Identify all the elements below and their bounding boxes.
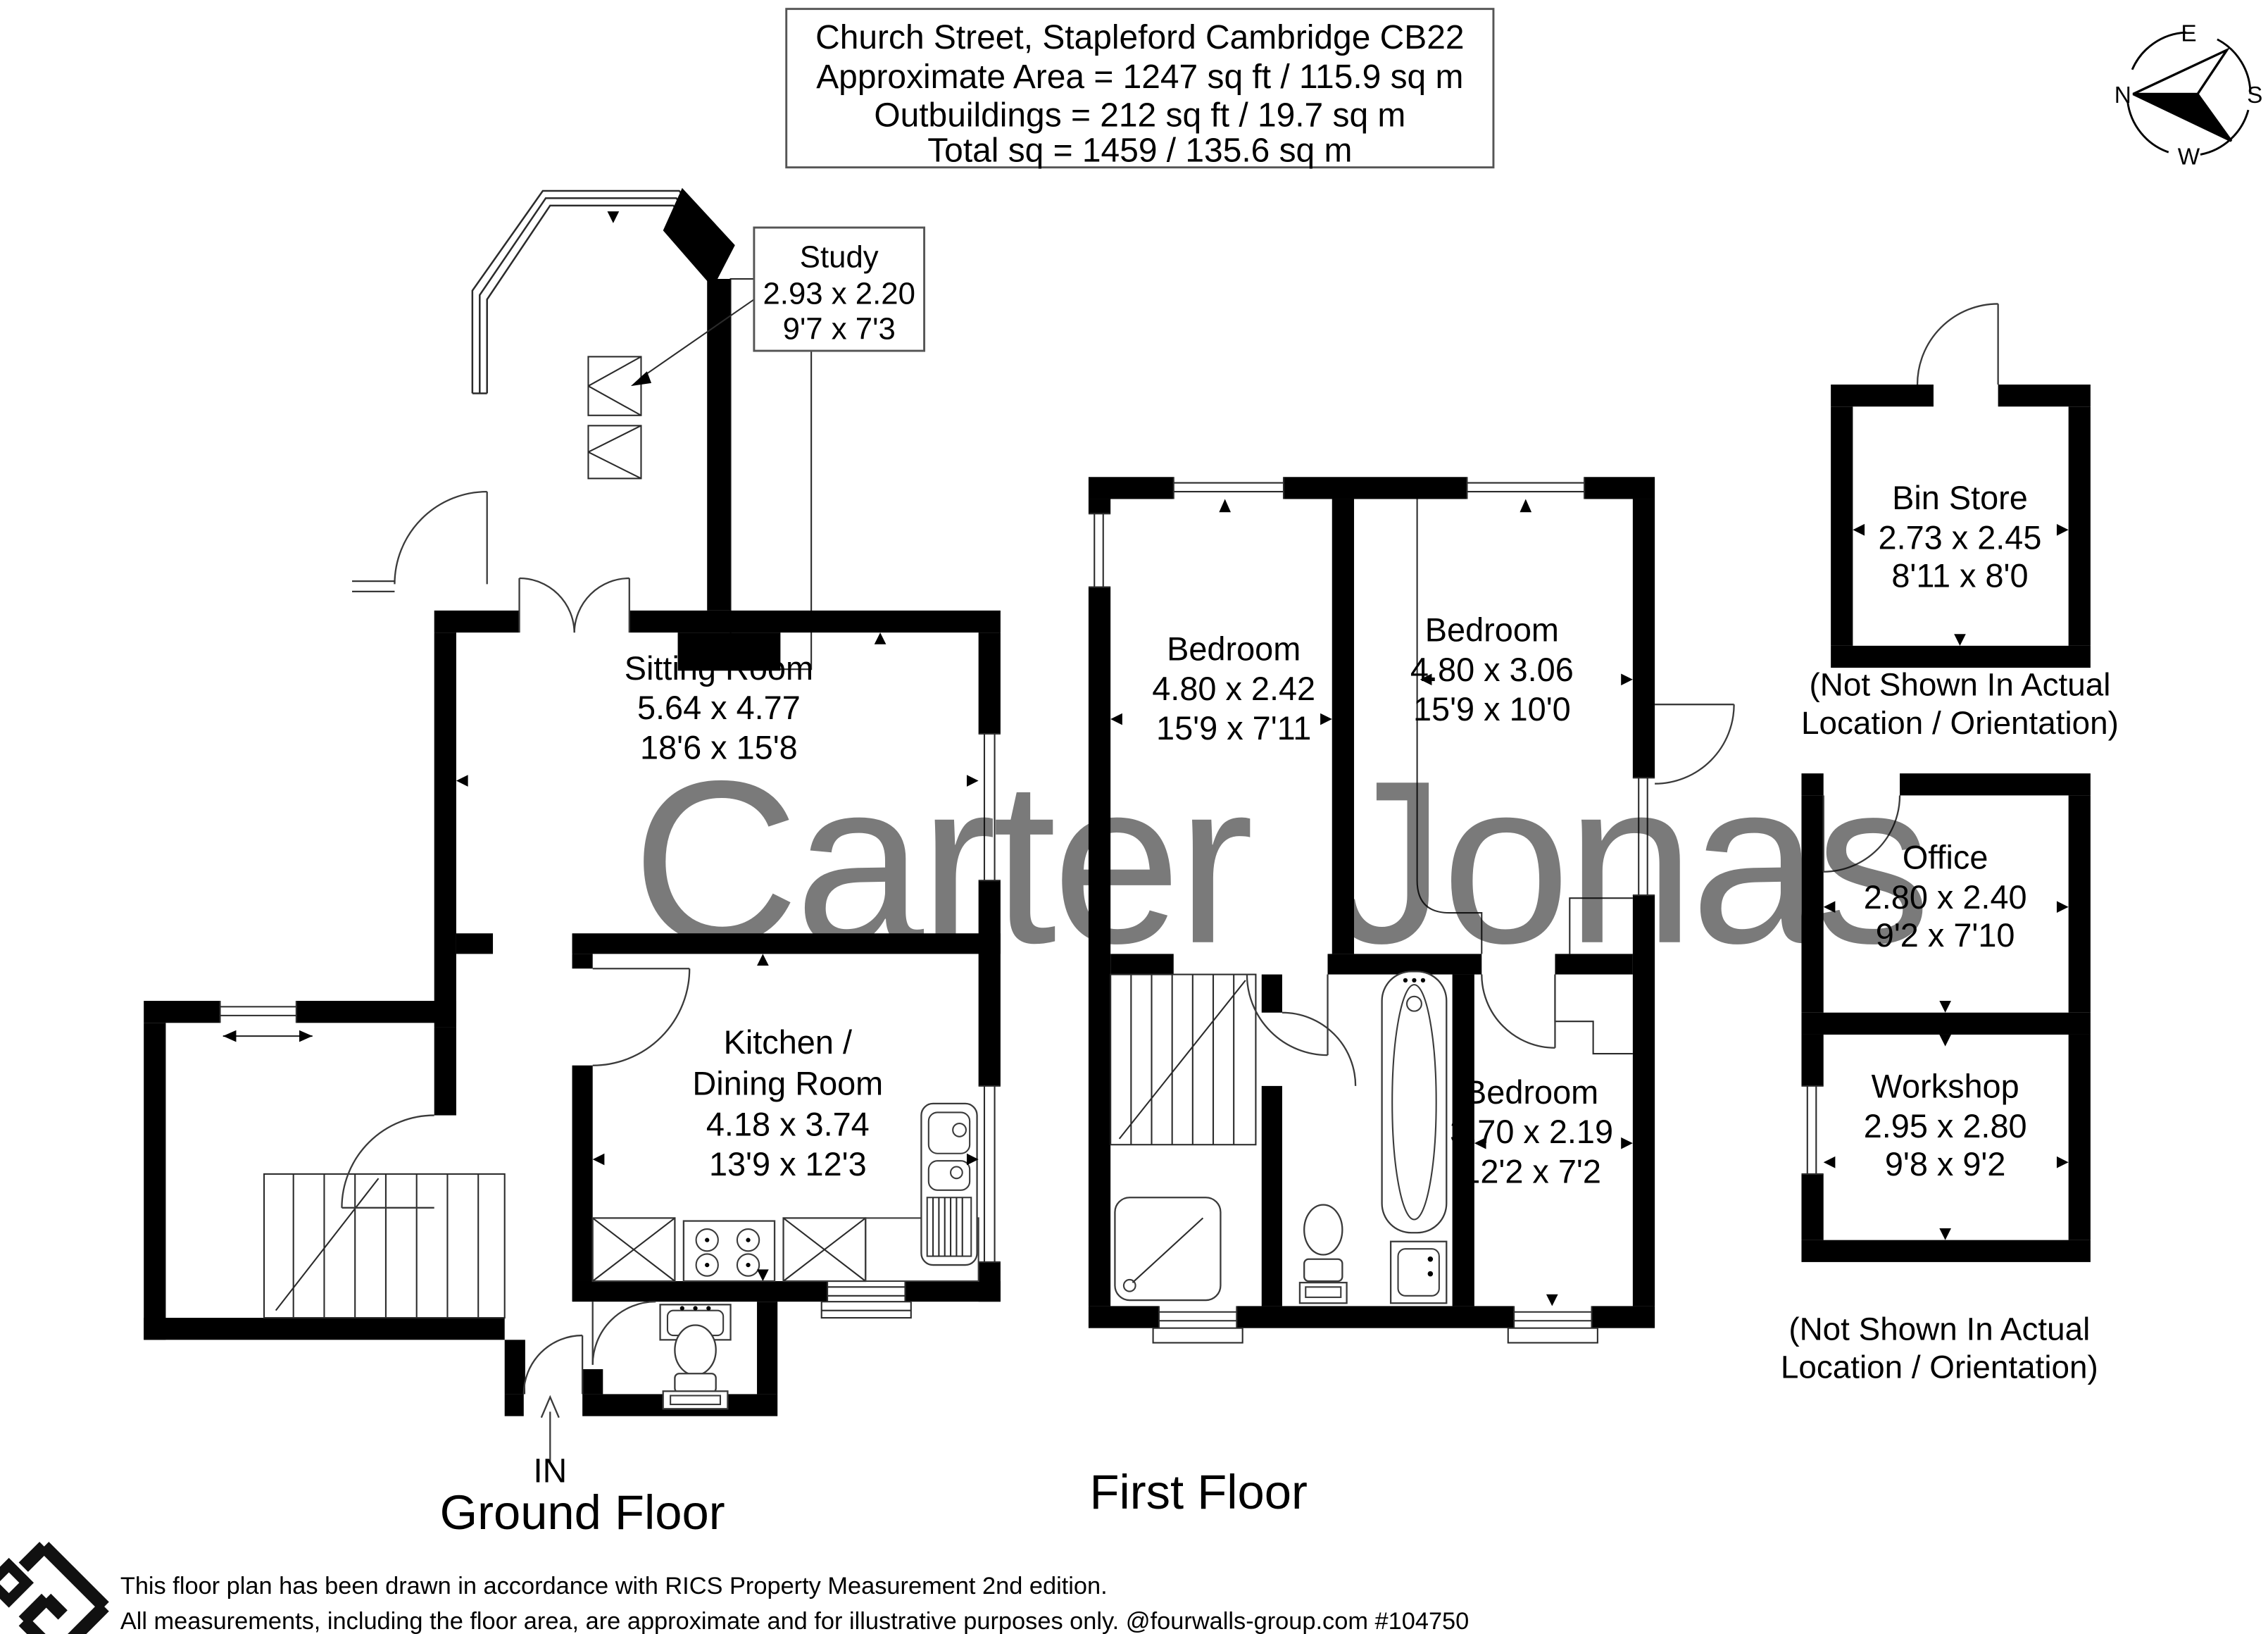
window (1153, 1306, 1243, 1342)
kitchen-name-2: Dining Room (692, 1065, 883, 1102)
bedroom2-metric: 4.80 x 3.06 (1410, 651, 1574, 688)
first-floor-plan: Bedroom 4.80 x 2.42 15'9 x 7'11 Bedroom … (1089, 477, 1734, 1519)
bathroom-sink-icon (1391, 1242, 1446, 1304)
window (1174, 477, 1284, 499)
sliding-arrow-icon (223, 1030, 313, 1042)
bin-store-door-arc (1917, 304, 1998, 385)
window (220, 1001, 296, 1023)
compass-needle-bottom (2133, 94, 2231, 141)
window (1801, 1086, 1823, 1174)
bin-store-metric: 2.73 x 2.45 (1879, 519, 2042, 556)
footer-rics-line: This floor plan has been drawn in accord… (120, 1573, 1108, 1599)
outbuilding-note-2: Location / Orientation) (1781, 1349, 2098, 1385)
bedroom1-metric: 4.80 x 2.42 (1152, 671, 1315, 707)
header-area: Approximate Area = 1247 sq ft / 115.9 sq… (816, 58, 1463, 96)
kitchen-sink-icon (921, 1104, 977, 1265)
watermark-logo: Carter Jonas (632, 732, 1926, 992)
bedroom3-name: Bedroom (1465, 1074, 1598, 1111)
header-box: Church Street, Stapleford Cambridge CB22… (787, 9, 1493, 170)
outbuilding-note-1: (Not Shown In Actual (1788, 1311, 2090, 1347)
header-total: Total sq = 1459 / 135.6 sq m (927, 132, 1352, 169)
bay-dim-tick (608, 211, 620, 223)
bedroom3-imperial: 12'2 x 7'2 (1462, 1153, 1601, 1190)
kitchen-imperial: 13'9 x 12'3 (709, 1146, 867, 1183)
casement-window-icon (588, 356, 641, 478)
compass-needle-top (2133, 50, 2226, 94)
kitchen-name-1: Kitchen / (724, 1024, 853, 1061)
footer-measurements-line: All measurements, including the floor ar… (120, 1608, 1469, 1634)
compass-w: W (2178, 144, 2200, 170)
header-outbuildings: Outbuildings = 212 sq ft / 19.7 sq m (874, 96, 1405, 134)
window (1089, 513, 1110, 587)
study-metric: 2.93 x 2.20 (763, 276, 915, 311)
stairs-ground (264, 1174, 505, 1318)
footer: This floor plan has been drawn in accord… (0, 1538, 1469, 1634)
bedroom1-name: Bedroom (1167, 631, 1301, 668)
study-label-box: Study 2.93 x 2.20 9'7 x 7'3 (631, 227, 925, 386)
toilet-icon (1300, 1205, 1347, 1304)
fourwalls-logo-icon (0, 1538, 104, 1634)
window (979, 1086, 1001, 1262)
header-address: Church Street, Stapleford Cambridge CB22 (815, 19, 1464, 56)
window (1467, 477, 1584, 499)
workshop-imperial: 9'8 x 9'2 (1885, 1146, 2006, 1183)
bin-store-note-1: (Not Shown In Actual (1809, 667, 2110, 703)
first-floor-label: First Floor (1089, 1465, 1307, 1519)
bedroom3-metric: 3.70 x 2.19 (1450, 1114, 1613, 1150)
compass-rose: E S W N (2114, 20, 2263, 170)
bin-store-imperial: 8'11 x 8'0 (1891, 558, 2028, 594)
bathtub-icon (1382, 971, 1447, 1233)
window (822, 1281, 911, 1318)
study-name: Study (800, 239, 879, 274)
bin-store-name: Bin Store (1892, 480, 2028, 516)
sitting-room-name: Sitting Room (625, 650, 813, 687)
kitchen-metric: 4.18 x 3.74 (706, 1106, 870, 1143)
bedroom2-name: Bedroom (1425, 612, 1559, 649)
sitting-room-metric: 5.64 x 4.77 (637, 690, 801, 726)
stairs-first (1110, 975, 1255, 1145)
compass-n: N (2114, 82, 2131, 108)
compass-e: E (2181, 20, 2196, 46)
floor-plan-canvas: Church Street, Stapleford Cambridge CB22… (0, 0, 2268, 1634)
compass-s: S (2247, 82, 2262, 108)
window (1508, 1306, 1598, 1342)
workshop-name: Workshop (1872, 1068, 2019, 1105)
bin-store-plan: Bin Store 2.73 x 2.45 8'11 x 8'0 (Not Sh… (1801, 304, 2119, 740)
workshop-metric: 2.95 x 2.80 (1864, 1108, 2027, 1145)
bedroom2-imperial: 15'9 x 10'0 (1413, 691, 1571, 728)
study-imperial: 9'7 x 7'3 (783, 311, 896, 346)
entry-label: IN (533, 1452, 567, 1490)
shower-icon (1115, 1197, 1220, 1300)
ground-floor-label: Ground Floor (440, 1485, 725, 1540)
